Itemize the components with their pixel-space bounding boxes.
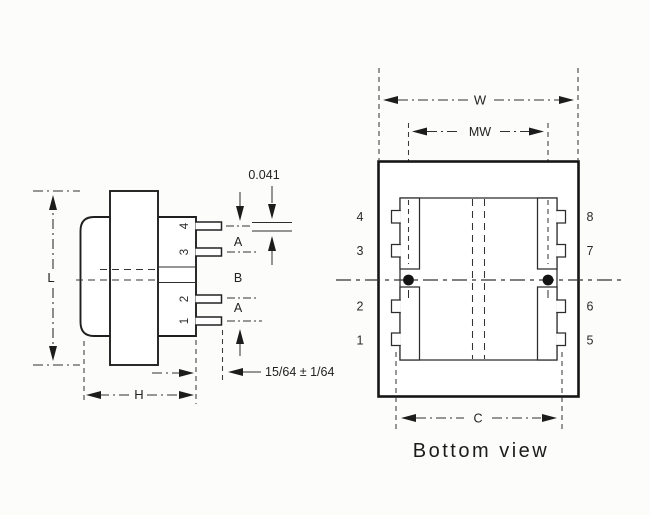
pin-2-label: 2 [357,300,364,314]
label-0041: 0.041 [248,168,279,182]
arrow-left [401,414,416,422]
arrow-right [559,96,574,104]
label-MW: MW [469,125,491,139]
bobbin [400,198,557,360]
label-pin-length: 15/64 ± 1/64 [265,365,334,379]
datasheet-drawing-page: L 4 3 2 1 0.041 [0,0,650,515]
transformer-dimension-drawing: L 4 3 2 1 0.041 [0,0,650,515]
pin-4-label: 4 [179,222,191,229]
view-title: Bottom view [413,440,549,462]
arrow-left [412,128,427,136]
label-L: L [47,270,54,285]
dim-length-L: L [33,191,80,365]
pin-5-label: 5 [587,334,594,348]
pin-tab-1 [392,333,401,346]
pin-tab-8 [556,211,565,224]
label-W: W [474,93,487,108]
pin-tab-7 [556,245,565,258]
pin-1 [196,317,222,325]
arrow-up [268,236,276,251]
pin-block-lower-left [400,287,420,360]
label-A-top: A [234,235,243,249]
arrow-down [49,346,57,361]
pin-1-label: 1 [179,318,191,324]
arrow-down [268,204,276,219]
pin-3-label: 3 [357,244,364,258]
mount-dot-left [403,275,414,286]
pin-block-upper-right [538,198,558,269]
pin-3-label: 3 [179,249,191,255]
arrow-up [49,195,57,210]
arrow-left [228,368,243,376]
dim-pin-thickness: 0.041 [226,168,292,265]
pin-3 [196,248,222,256]
pin-7-label: 7 [587,244,594,258]
arrow-right [529,128,544,136]
arrow-right [542,414,557,422]
pin-6-label: 6 [587,300,594,314]
pin-tab-3 [392,245,401,258]
dim-pin-pitch: A B A [227,235,262,356]
pin-block-lower-right [538,287,558,360]
arrow-left [86,391,101,399]
bottom-view: W MW [336,68,621,462]
dim-width-W: W [379,68,578,160]
arrow-right [179,369,194,377]
side-view: L 4 3 2 1 0.041 [33,168,334,404]
label-B: B [234,271,242,285]
pin-block-upper-left [400,198,420,269]
arrow-up [236,329,244,344]
arrow-down [236,206,244,221]
pin-8-label: 8 [587,210,594,224]
label-C: C [473,412,482,426]
pin-2-label: 2 [179,296,191,302]
pin-4 [196,222,222,230]
mount-dot-right [543,275,554,286]
pin-1-label: 1 [357,334,364,348]
label-H: H [134,387,143,402]
arrow-left [383,96,398,104]
label-A-bottom: A [234,301,243,315]
pin-4-label: 4 [357,210,364,224]
pin-tab-5 [556,333,565,346]
core-stack [110,191,158,365]
pin-2 [196,295,222,303]
arrow-right [179,391,194,399]
dim-pin-length: 15/64 ± 1/64 [152,330,334,380]
pin-tab-2 [392,300,401,313]
pin-tab-6 [556,300,565,313]
pin-tab-4 [392,211,401,224]
